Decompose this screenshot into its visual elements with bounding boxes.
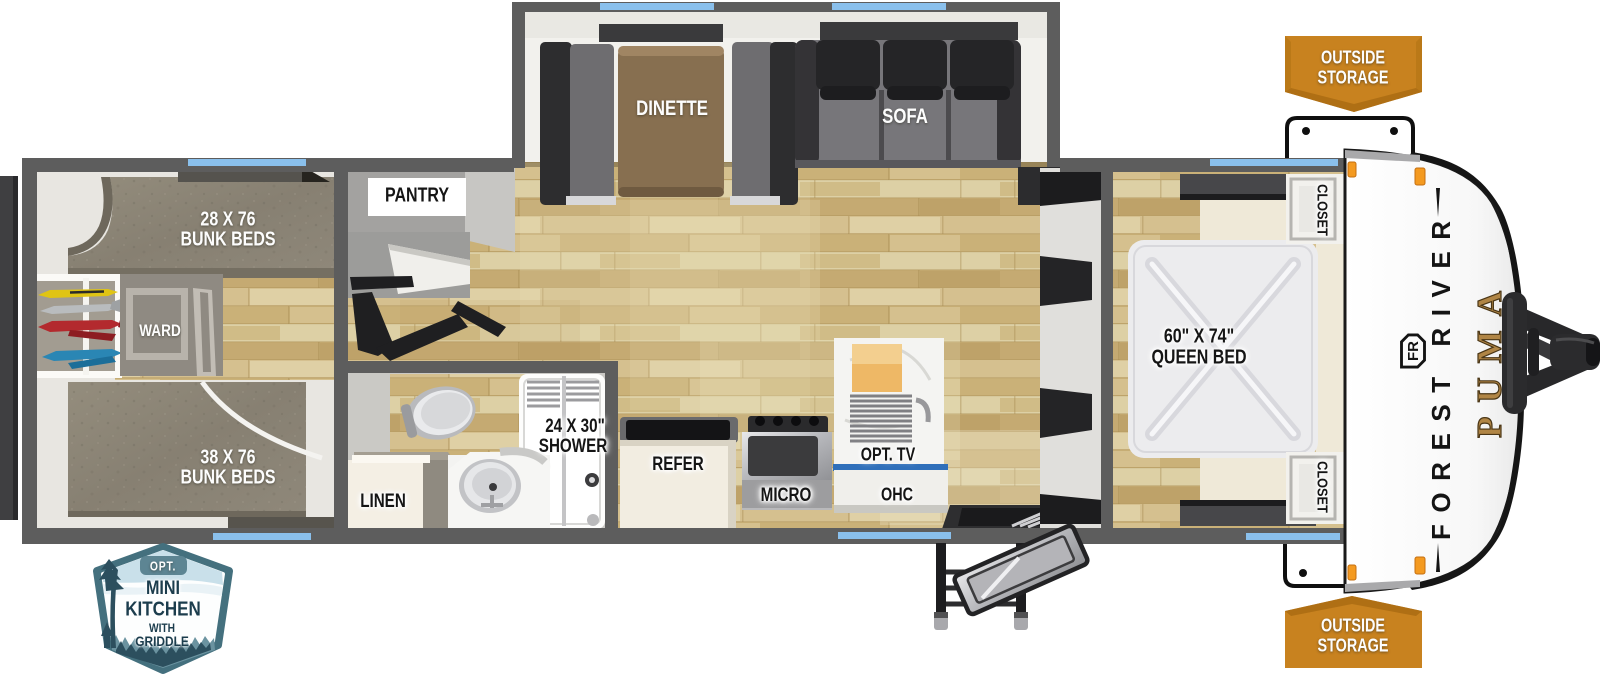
- svg-text:FR: FR: [1405, 341, 1422, 361]
- svg-text:FOREST RIVER: FOREST RIVER: [1426, 220, 1456, 540]
